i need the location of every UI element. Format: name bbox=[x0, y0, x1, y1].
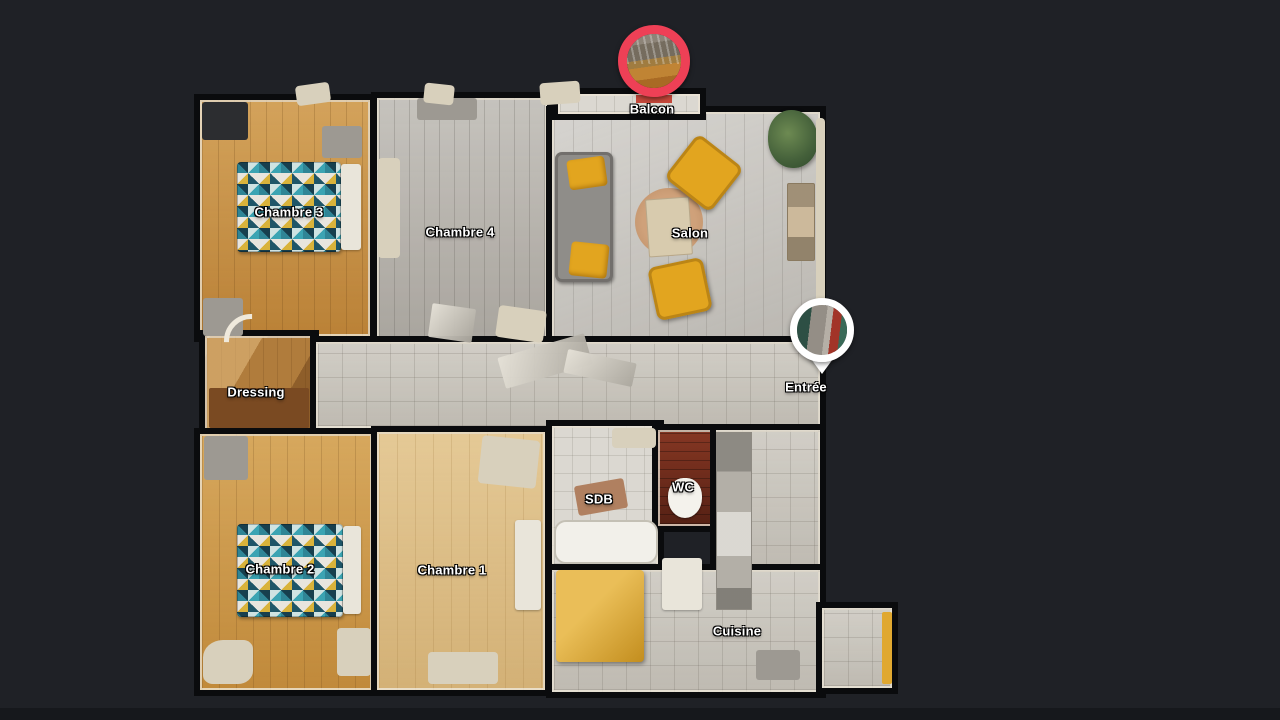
appliance bbox=[756, 650, 800, 680]
scan-artifact bbox=[495, 305, 547, 343]
balcony-photo-thumbnail bbox=[627, 34, 681, 88]
kitchen-counter bbox=[716, 432, 752, 610]
entry-photo-thumbnail bbox=[797, 305, 847, 355]
room-label-chambre-3: Chambre 3 bbox=[255, 205, 324, 220]
room-label-cuisine: Cuisine bbox=[713, 624, 761, 639]
wardrobe bbox=[322, 126, 362, 158]
room-label-chambre-1: Chambre 1 bbox=[418, 563, 487, 578]
room-label-wc: WC bbox=[672, 480, 694, 495]
sofa-cushion bbox=[566, 156, 608, 191]
room-label-sdb: SDB bbox=[585, 492, 613, 507]
sofa-cushion bbox=[568, 241, 609, 279]
bed-frame bbox=[343, 526, 361, 614]
scan-artifact bbox=[478, 435, 541, 489]
marker-label-balcon: Balcon bbox=[630, 102, 675, 117]
wardrobe bbox=[204, 436, 248, 480]
marker-label-entree: Entrée bbox=[785, 380, 827, 395]
kitchen-cabinet bbox=[556, 570, 644, 662]
scan-artifact bbox=[428, 652, 498, 684]
armchair bbox=[647, 257, 713, 321]
bottom-letterbox bbox=[0, 708, 1280, 720]
balcony-edge bbox=[882, 612, 892, 684]
pin-ring bbox=[790, 298, 854, 362]
wall-artifact bbox=[423, 82, 455, 105]
room-chambre-4[interactable] bbox=[377, 98, 547, 342]
radiator bbox=[515, 520, 541, 610]
sideboard bbox=[787, 183, 815, 261]
scan-artifact bbox=[428, 303, 476, 343]
sink-counter bbox=[612, 428, 656, 448]
bed-frame bbox=[341, 164, 361, 250]
floorplan-viewport[interactable]: Chambre 3 Chambre 4 Salon Dressing Chamb… bbox=[0, 0, 1280, 720]
room-label-dressing: Dressing bbox=[227, 385, 284, 400]
wardrobe bbox=[378, 158, 400, 258]
bathtub bbox=[554, 520, 658, 564]
scan-hole bbox=[202, 102, 248, 140]
outer-wall bbox=[816, 118, 825, 328]
scan-artifact bbox=[203, 640, 253, 684]
desk bbox=[337, 628, 371, 676]
kitchen-table bbox=[662, 558, 702, 610]
plant bbox=[768, 110, 818, 168]
balcon-photo-marker[interactable] bbox=[618, 25, 690, 97]
room-label-salon: Salon bbox=[672, 226, 708, 241]
room-label-chambre-2: Chambre 2 bbox=[246, 562, 315, 577]
room-label-chambre-4: Chambre 4 bbox=[426, 225, 495, 240]
wall-artifact bbox=[539, 81, 580, 106]
entree-pin-marker[interactable] bbox=[790, 298, 854, 362]
